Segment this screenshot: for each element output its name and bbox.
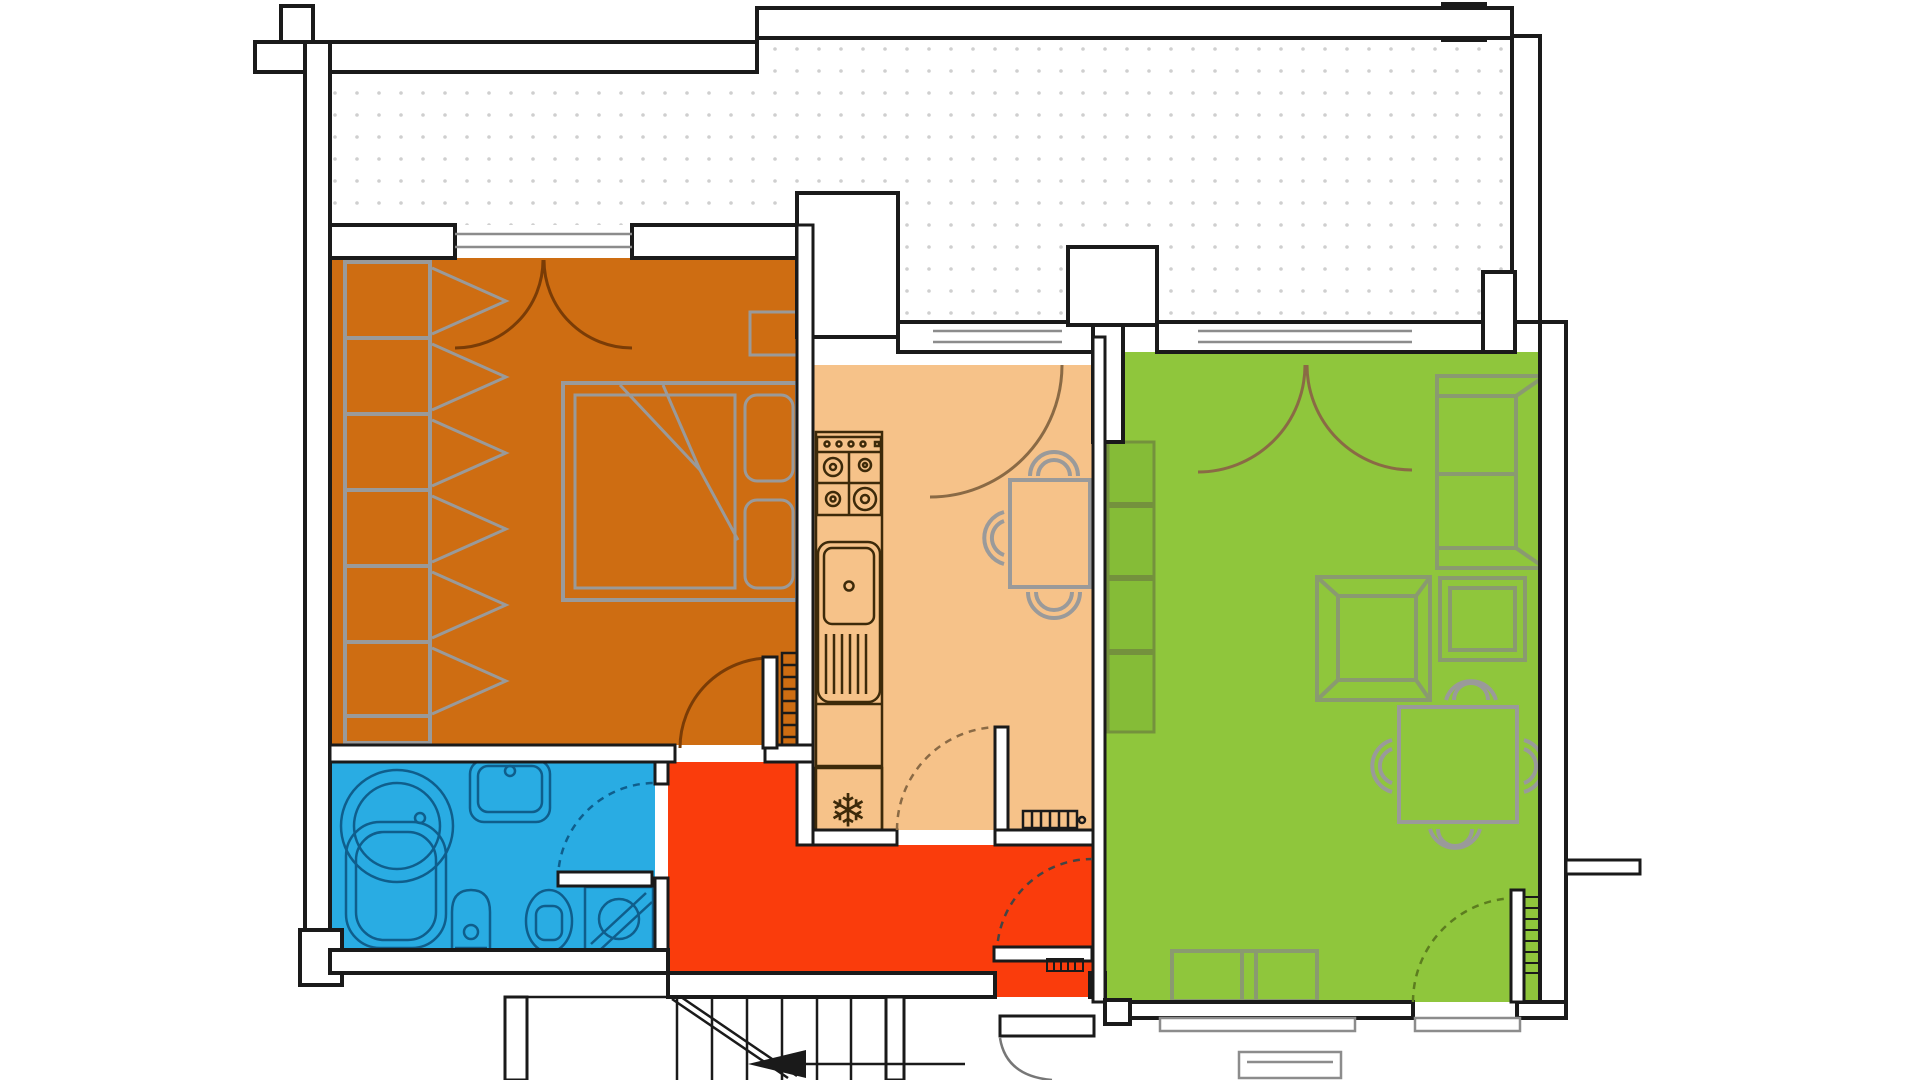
wall-jog-right <box>1566 860 1640 874</box>
wall-kitchen-living <box>1093 337 1105 1002</box>
wall-living-bottom-2 <box>1517 1002 1566 1018</box>
wall-kitchen-window-band <box>898 322 1093 352</box>
wall-stair-left <box>505 997 527 1080</box>
wall-living-right <box>1540 322 1566 1018</box>
room-kitchen <box>813 365 1093 830</box>
wall-bathroom-right-2 <box>655 878 668 953</box>
wall-shaft-right <box>1068 247 1157 325</box>
wall-bedroom-top-2 <box>632 225 797 258</box>
wall-block-below <box>1105 1000 1130 1024</box>
room-living <box>1105 352 1540 1002</box>
wall-living-window-band <box>1157 322 1483 352</box>
sill-below-living-1 <box>1160 1018 1355 1031</box>
wall-left <box>305 42 330 973</box>
room-bathroom <box>330 762 655 950</box>
terrace-floor-left <box>330 70 800 225</box>
wall-kitchen-bottom-2 <box>995 830 1093 845</box>
kitchen-door-leaf <box>995 727 1008 830</box>
wall-bedroom-top-1 <box>330 225 455 258</box>
wall-living-bottom-1 <box>1105 1002 1413 1018</box>
wall-hall-bottom-1 <box>668 973 995 997</box>
sill-below-living-2 <box>1415 1018 1520 1031</box>
bedroom-door-leaf <box>763 657 777 748</box>
wall-kitchen-bottom-1 <box>813 830 897 845</box>
living-door-leaf <box>1511 890 1524 1002</box>
wall-bathroom-bottom <box>330 950 668 973</box>
wall-top-right <box>757 8 1512 38</box>
bookshelf <box>1108 442 1154 732</box>
wall-bedroom-bottom-1 <box>330 745 675 762</box>
floor-plan-page: ❄ <box>0 0 1920 1080</box>
window-below <box>1239 1052 1341 1078</box>
bathroom-door-leaf <box>558 872 652 886</box>
floor-plan-svg: ❄ <box>0 0 1920 1080</box>
wall-stair-right <box>886 997 904 1080</box>
wall-bathroom-right-1 <box>655 762 668 784</box>
wall-step-top-right <box>1483 272 1515 352</box>
